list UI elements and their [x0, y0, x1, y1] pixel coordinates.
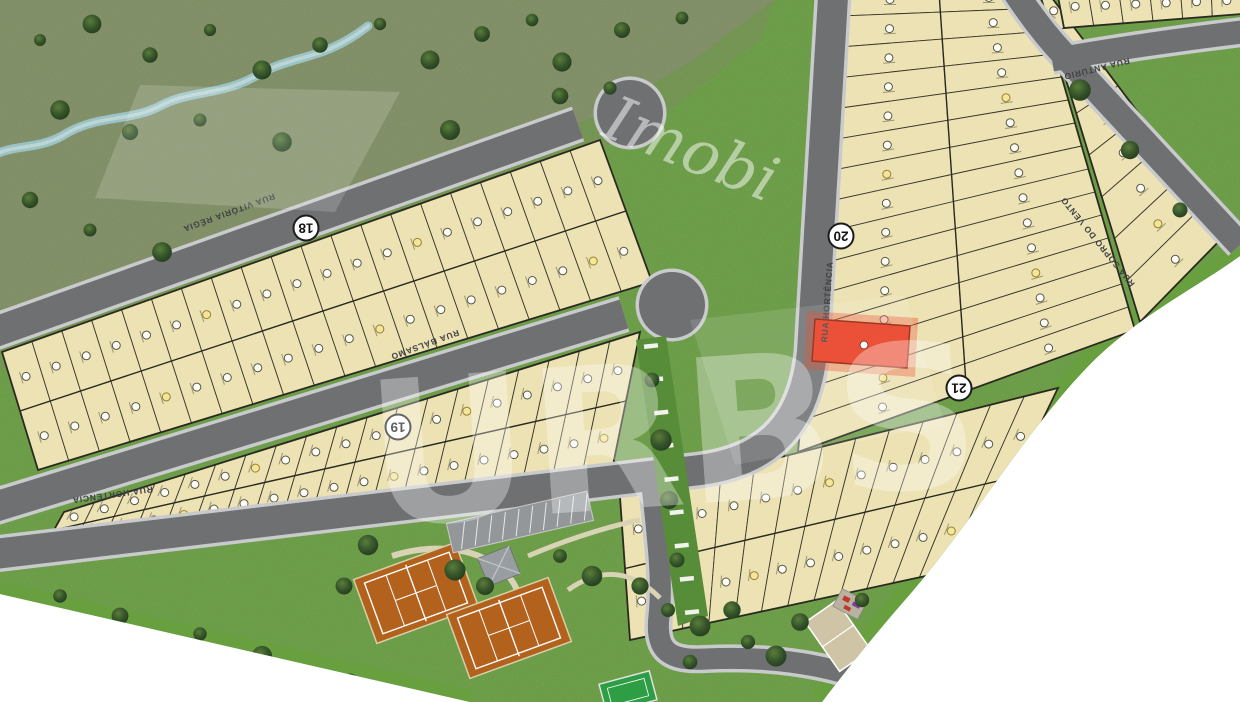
tree [766, 646, 787, 667]
lot-number-circle [1023, 219, 1031, 227]
tree [552, 88, 569, 105]
lot-number-circle [161, 489, 169, 497]
lot-number-circle [891, 540, 899, 548]
lot-number-circle [884, 83, 892, 91]
lot-number-circle [564, 187, 572, 195]
tree [83, 15, 102, 34]
lot-number-circle [882, 228, 890, 236]
lot-number-circle [191, 480, 199, 488]
lot-number-circle [985, 440, 993, 448]
lot-number-circle [559, 267, 567, 275]
tree [723, 601, 740, 618]
lot-number-circle [1032, 269, 1040, 277]
lot-number-circle [528, 277, 536, 285]
lot-number-circle [883, 170, 891, 178]
lot-number-circle [885, 54, 893, 62]
tree [336, 578, 353, 595]
tree [890, 630, 911, 651]
lot-number-circle [1011, 144, 1019, 152]
lot-number-circle [203, 311, 211, 319]
tree [53, 589, 67, 603]
lot-number-circle [467, 296, 475, 304]
tree [582, 566, 603, 587]
tree [112, 608, 129, 625]
lot-number-circle [233, 300, 241, 308]
lot-number-circle [70, 513, 78, 521]
block-badge-18: 18 [294, 216, 319, 241]
lot-number-circle [383, 249, 391, 257]
lot-number-circle [1036, 294, 1044, 302]
lot-number-circle [750, 572, 758, 580]
lot-number-circle [406, 315, 414, 323]
lot-number-circle [1171, 255, 1179, 263]
lot-number-circle [989, 19, 997, 27]
tree [899, 671, 918, 690]
tree [84, 224, 97, 237]
lot-number-circle [993, 44, 1001, 52]
tree [204, 24, 216, 36]
lot-number-circle [40, 432, 48, 440]
lot-number-circle [342, 440, 350, 448]
tree [631, 577, 648, 594]
site-plan: RUA VITÓRIA RÉGIA RUA BÁLSAMO RUA HORTÊN… [0, 0, 1240, 702]
tree [741, 635, 755, 649]
lot-number-circle [360, 478, 368, 486]
lot-number-circle [112, 341, 120, 349]
lot-number-circle [143, 331, 151, 339]
lot-number-circle [1193, 0, 1201, 6]
lot-number-circle [882, 199, 890, 207]
tree [252, 646, 272, 666]
tree [661, 603, 675, 617]
lot-number-circle [1040, 319, 1048, 327]
lot-number-circle [881, 287, 889, 295]
lot-number-circle [300, 489, 308, 497]
lot-number-circle [284, 354, 292, 362]
lot-number-circle [1162, 0, 1170, 7]
lot-number-circle [282, 456, 290, 464]
lot-number-circle [1002, 94, 1010, 102]
lot-number-circle [1006, 119, 1014, 127]
lot-number-circle [474, 218, 482, 226]
lot-number-circle [638, 597, 646, 605]
lot-number-circle [1045, 344, 1053, 352]
lot-number-circle [884, 112, 892, 120]
tree [1121, 141, 1139, 159]
lot-number-circle [620, 247, 628, 255]
lot-number-circle [534, 197, 542, 205]
tree [253, 61, 272, 80]
tree [152, 242, 172, 262]
tree [603, 81, 616, 94]
tree [142, 47, 157, 62]
tree [50, 100, 69, 119]
lot-number-circle [413, 238, 421, 246]
lot-number-circle [594, 177, 602, 185]
lot-number-circle [437, 306, 445, 314]
tree [690, 616, 711, 637]
lot-number-circle [1132, 0, 1140, 8]
lot-number-circle [1071, 2, 1079, 10]
lot-number-circle [52, 362, 60, 370]
tree [374, 18, 386, 30]
tree [342, 674, 359, 691]
lot-number-circle [1137, 184, 1145, 192]
lot-number-circle [254, 364, 262, 372]
lot-number-circle [162, 393, 170, 401]
lot-number-circle [71, 422, 79, 430]
lot-number-circle [998, 69, 1006, 77]
lot-number-circle [1050, 7, 1058, 15]
lot-number-circle [323, 269, 331, 277]
lot-number-circle [330, 483, 338, 491]
lot-number-circle [1019, 194, 1027, 202]
tree [1069, 79, 1091, 101]
tree [552, 52, 571, 71]
lot-number-circle [881, 257, 889, 265]
svg-text:20: 20 [833, 229, 848, 244]
block-badge-20: 20 [829, 224, 854, 249]
lot-number-circle [1154, 220, 1162, 228]
lot-number-circle [1102, 1, 1110, 9]
tree [855, 593, 869, 607]
lot-number-circle [315, 344, 323, 352]
tree [676, 12, 689, 25]
tree [474, 26, 490, 42]
tree [421, 51, 440, 70]
lot-number-circle [221, 472, 229, 480]
lot-annotation-mark [1222, 0, 1223, 7]
lot-number-circle [1223, 0, 1231, 5]
tree [791, 613, 809, 631]
tree [670, 553, 685, 568]
lot-number-circle [312, 448, 320, 456]
lot-number-circle [443, 228, 451, 236]
tree [193, 627, 206, 640]
lot-number-circle [1028, 244, 1036, 252]
lot-number-circle [376, 325, 384, 333]
lot-number-circle [1017, 432, 1025, 440]
tree [312, 37, 328, 53]
lot-number-circle [807, 559, 815, 567]
lot-annotation-mark [987, 27, 999, 28]
watermark-monogram: URBS [359, 299, 987, 574]
lot-number-circle [353, 259, 361, 267]
lot-number-circle [883, 141, 891, 149]
site-plan-map: RUA VITÓRIA RÉGIA RUA BÁLSAMO RUA HORTÊN… [0, 0, 1240, 702]
lot-number-circle [778, 565, 786, 573]
lot-number-circle [270, 494, 278, 502]
svg-text:18: 18 [298, 221, 314, 236]
lot-annotation-mark [884, 33, 896, 34]
tree [440, 120, 460, 140]
lot-number-circle [193, 383, 201, 391]
lot-number-circle [101, 412, 109, 420]
tree [859, 649, 881, 671]
lot-number-circle [173, 321, 181, 329]
lot-number-circle [835, 553, 843, 561]
lot-number-circle [100, 505, 108, 513]
lot-number-circle [886, 25, 894, 33]
lot-number-circle [863, 546, 871, 554]
lot-number-circle [498, 286, 506, 294]
lot-number-circle [722, 578, 730, 586]
lot-number-circle [82, 352, 90, 360]
tree [34, 34, 46, 46]
tree [921, 651, 939, 669]
lot-number-circle [504, 208, 512, 216]
lot-number-circle [251, 464, 259, 472]
lot-number-circle [132, 403, 140, 411]
tree [614, 22, 630, 38]
tree [1173, 203, 1188, 218]
lot-number-circle [223, 374, 231, 382]
lot-number-circle [589, 257, 597, 265]
tree [22, 192, 38, 208]
lot-number-circle [263, 290, 271, 298]
tree [683, 655, 698, 670]
lot-number-circle [1015, 169, 1023, 177]
tree [476, 577, 494, 595]
lot-number-circle [345, 335, 353, 343]
lot-number-circle [886, 0, 894, 4]
lot-number-circle [293, 280, 301, 288]
tree [526, 14, 539, 27]
lot-number-circle [22, 372, 30, 380]
